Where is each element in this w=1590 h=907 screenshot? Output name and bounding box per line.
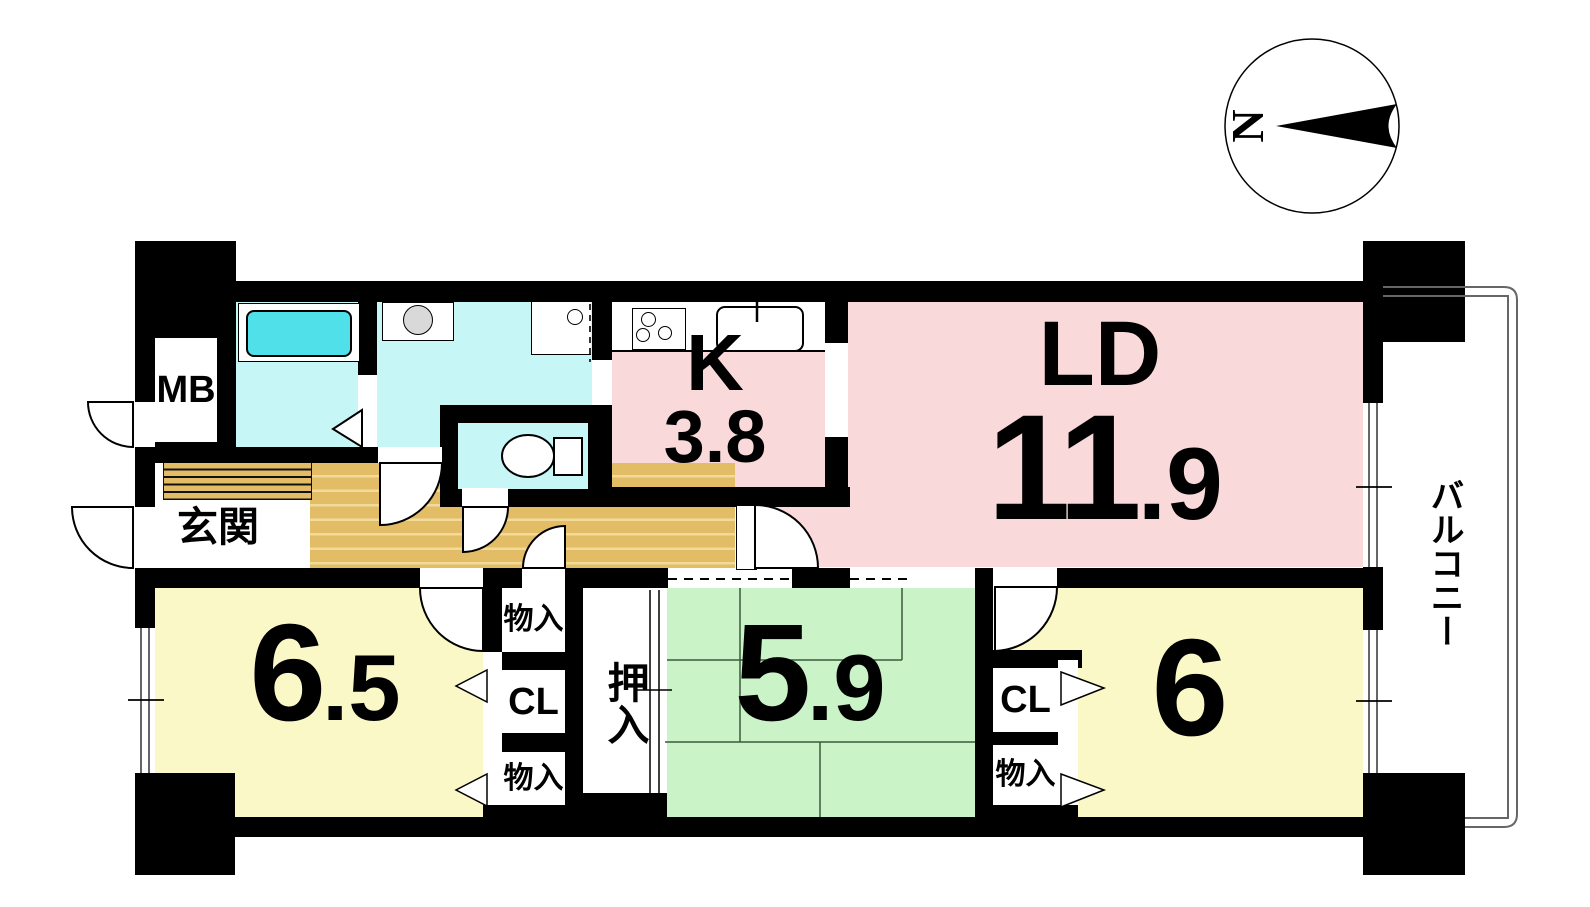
living-dining-floor-notch [755,507,848,567]
wall-closet-divider [502,733,565,752]
kitchen-ld-opening [825,343,848,437]
wall-hall-south [565,568,668,588]
wall-ld-bedroom-east [975,568,993,588]
bedroom-east-door-opening [993,568,1057,588]
entry-door-swing [88,402,133,447]
closet-cl-label: CL [502,670,565,733]
wall-kitchen-ld [825,302,848,343]
wall-tatami-bedroom-east [975,588,993,817]
balcony-label: バルコニー [1408,465,1480,660]
area-main: 6 [249,604,322,742]
tatami-room-area-label: 5.9 [685,604,935,772]
washing-machine [403,305,433,335]
wall-closet-divider [502,652,565,670]
bedroom-west-floor-lower [235,773,483,817]
entry-door-swing [72,507,133,568]
wall-segment-right [1363,567,1383,630]
storage-label: 物入 [502,752,565,805]
hall-storage-door-opening [522,568,565,588]
wall-segment-left [135,568,155,628]
entry-door-opening [135,507,155,568]
wall-kitchen-south [592,487,850,507]
pillar-top-right [1363,241,1465,342]
washroom-door-opening [378,447,442,463]
bedroom-west-door-opening [420,568,483,588]
entrance-step-mat [163,462,312,500]
pillar-bottom-right [1363,773,1465,875]
tatami-sliding-door-opening [668,568,792,588]
toilet-room-floor [458,423,588,489]
wall-kitchen-ld [825,437,848,507]
oshiire-label: 押入 [586,638,664,768]
wall-hall-south [155,568,420,588]
window-opening-east [1363,630,1383,773]
storage-label: 物入 [993,745,1058,805]
compass-north-needle [1276,104,1397,148]
closet-door-strip-east [1058,660,1078,805]
wall-segment-bottom [155,817,1363,837]
tatami-sliding-door-opening [850,568,912,588]
entrance-label: 玄関 [158,500,278,555]
wall-segment-top [155,281,1363,302]
wall-ld-tatami [792,568,850,588]
hall-ld-door-leaf [736,505,757,570]
area-main: 5 [734,604,807,742]
bathroom-door-opening [358,375,377,447]
kitchen-door-opening [592,360,612,405]
storage-label: 物入 [502,588,565,652]
living-dining-area-label: 11.9 [955,392,1255,542]
wall-segment-left [135,447,155,507]
floor-plan: N MB 玄関 K 3.8 LD 11.9 6.5 5.9 6 物入 CL 物入… [0,0,1590,907]
window-opening-west [135,628,155,773]
wall-hall-south [483,568,522,588]
vanity-sink [531,302,591,355]
area-sub: .9 [1138,433,1223,535]
wall-bath-washroom [358,302,377,375]
pillar-bottom-left [135,773,235,875]
wall-ld-bedroom-east [1057,568,1363,588]
bathtub [246,310,352,357]
area-sub: .5 [322,641,400,735]
bedroom-west-area-label: 6.5 [200,604,450,772]
wall-oshiire-base [583,793,667,817]
wall-closet-oshiire [565,588,583,806]
wall-closet-east-base [993,805,1078,817]
window-opening-ld [1363,403,1383,567]
wall-closet-east-divider [993,732,1058,745]
area-main: 11 [987,392,1138,542]
toilet-door-opening [462,488,508,507]
closet-door-strip-west [483,652,502,805]
tatami-wall-opening [912,568,975,588]
bedroom-east-area-label: 6 [1090,604,1290,772]
vanity-faucet [567,309,583,325]
kitchen-label: K [640,320,790,406]
wall-closet-west [483,588,502,652]
closet-cl-label: CL [993,668,1058,732]
wall-closet-base [483,805,583,817]
entry-door-opening [135,402,155,447]
compass-north-label: N [1222,106,1274,146]
meter-box-label: MB [155,338,217,442]
wall-kitchen-west [592,302,612,360]
area-sub: .9 [807,641,885,735]
wall-segment-right [1363,342,1383,403]
kitchen-area-label: 3.8 [630,396,800,478]
